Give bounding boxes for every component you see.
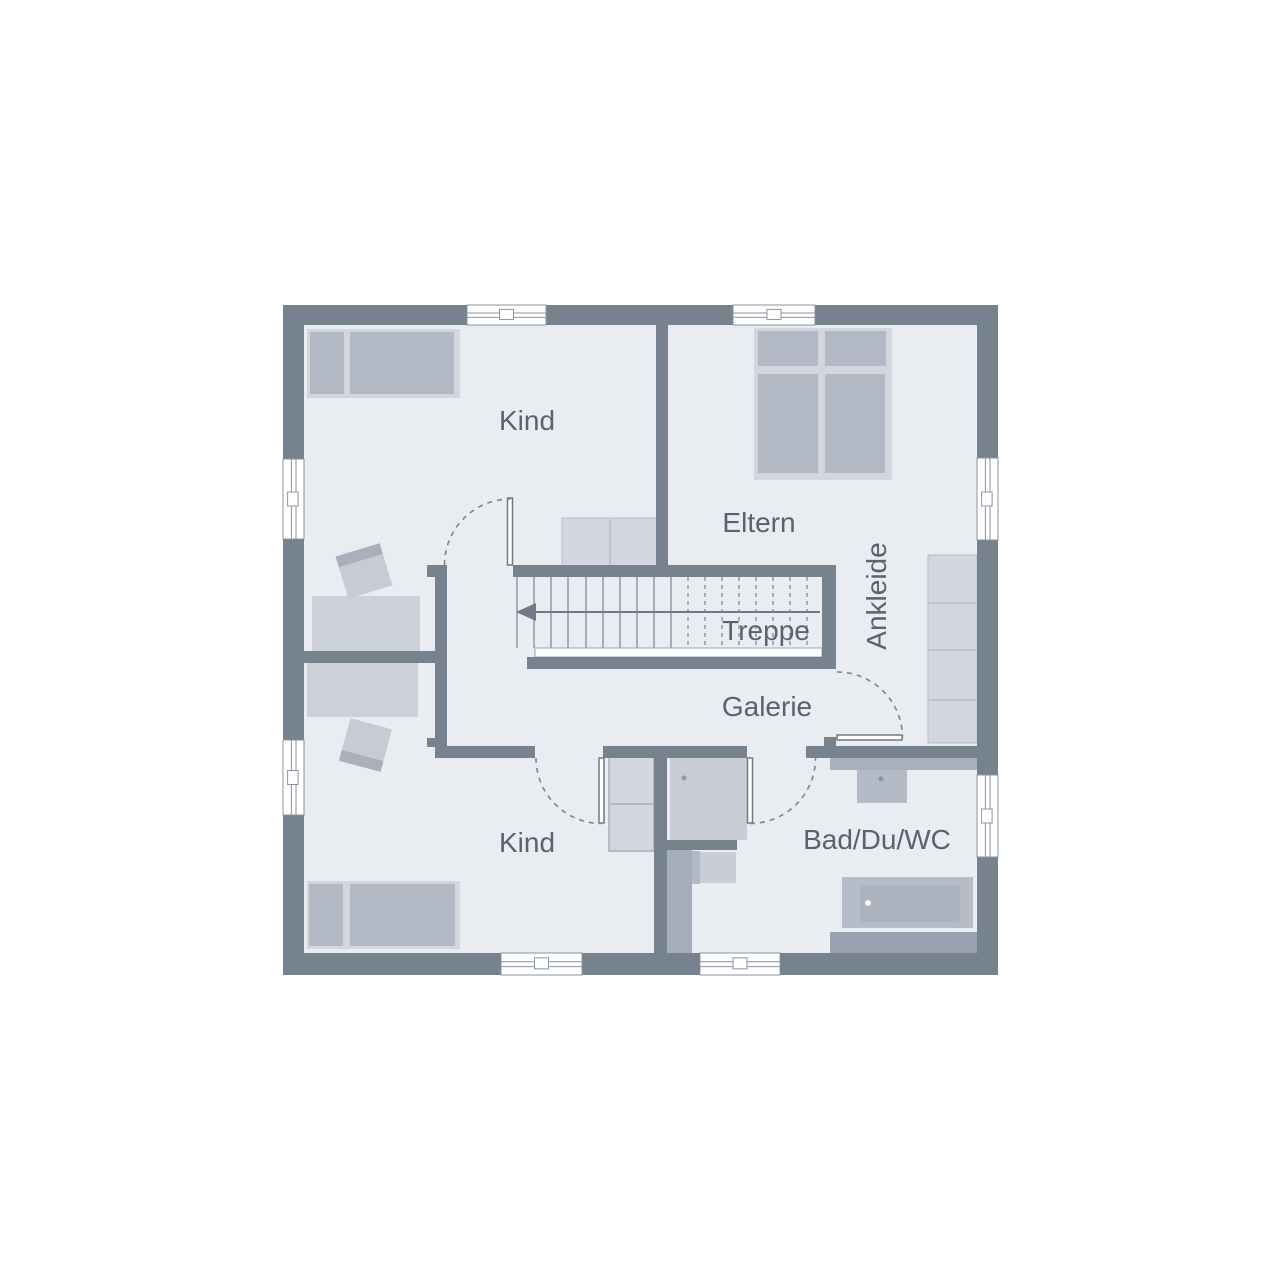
window-bottom-right-casement — [733, 958, 747, 969]
bath-bottom-band — [830, 932, 977, 953]
room-label-kind-top: Kind — [499, 405, 555, 436]
installation-strip — [667, 848, 692, 953]
bed-eltern-pillow-right — [825, 331, 886, 366]
room-label-galerie: Galerie — [722, 691, 812, 722]
desk-kind-bottom — [307, 663, 418, 717]
bed-kind-bottom-pillow — [309, 884, 343, 946]
window-left-upper-casement — [288, 492, 299, 506]
room-label-treppe: Treppe — [722, 615, 810, 646]
wall-bad-door-step — [824, 737, 836, 746]
desk-kind-top — [312, 596, 420, 651]
bed-eltern-pillow-left — [758, 331, 818, 366]
bed-eltern-mattress-left — [758, 374, 818, 473]
wall-kind-bad-divider — [654, 746, 667, 953]
vanity-counter — [830, 758, 977, 770]
room-label-eltern: Eltern — [722, 507, 795, 538]
wall-stair-south — [527, 657, 836, 669]
wall-hall-south-east — [603, 746, 747, 758]
window-top-right-casement — [767, 309, 781, 319]
bed-kind-bottom-mattress — [350, 884, 455, 946]
bathtub-drain — [865, 900, 871, 906]
wall-stair-north — [513, 565, 836, 577]
washbasin — [857, 770, 907, 803]
room-label-ankleide: Ankleide — [861, 542, 892, 649]
window-left-lower-casement — [288, 771, 299, 785]
wardrobe-ankleide — [928, 555, 977, 743]
room-label-bad: Bad/Du/WC — [803, 824, 951, 855]
door-leaf-kind-top — [508, 498, 513, 565]
window-right-upper-casement — [982, 492, 993, 506]
door-leaf-bad — [748, 758, 753, 823]
window-top-left-casement — [500, 309, 514, 319]
bed-kind-top-mattress — [350, 332, 454, 394]
bed-eltern-mattress-right — [825, 374, 885, 473]
outer-wall-left — [283, 305, 304, 975]
wall-divider-top-rooms — [656, 325, 668, 577]
wall-hall-stub — [427, 565, 447, 577]
floorplan-canvas: KindElternAnkleideTreppeGalerieKindBad/D… — [0, 0, 1280, 1280]
bed-kind-top-pillow — [310, 332, 344, 394]
wall-hall-south-west — [435, 746, 535, 758]
wall-left-rooms-divider — [304, 651, 435, 663]
wall-shower-south — [667, 840, 737, 850]
outer-wall-right — [977, 305, 998, 975]
door-leaf-ankleide — [837, 735, 902, 740]
stair-railing — [535, 648, 822, 657]
shower-drain — [682, 776, 687, 781]
floorplan-page: KindElternAnkleideTreppeGalerieKindBad/D… — [0, 0, 1280, 1280]
wall-bad-north — [806, 746, 977, 758]
shower — [670, 757, 747, 840]
outer-wall-bottom — [283, 953, 998, 975]
door-leaf-kind-bottom — [599, 758, 604, 823]
room-label-kind-bottom: Kind — [499, 827, 555, 858]
toilet-bowl — [700, 852, 736, 883]
wall-stair-east — [822, 565, 836, 669]
window-right-lower-casement — [982, 809, 993, 823]
washbasin-drain — [879, 777, 884, 782]
wall-hall-vertical — [435, 577, 447, 758]
bathtub — [860, 885, 960, 922]
outer-wall-top — [283, 305, 998, 325]
window-bottom-left-casement — [535, 958, 549, 969]
wall-hall-notch — [427, 738, 435, 747]
